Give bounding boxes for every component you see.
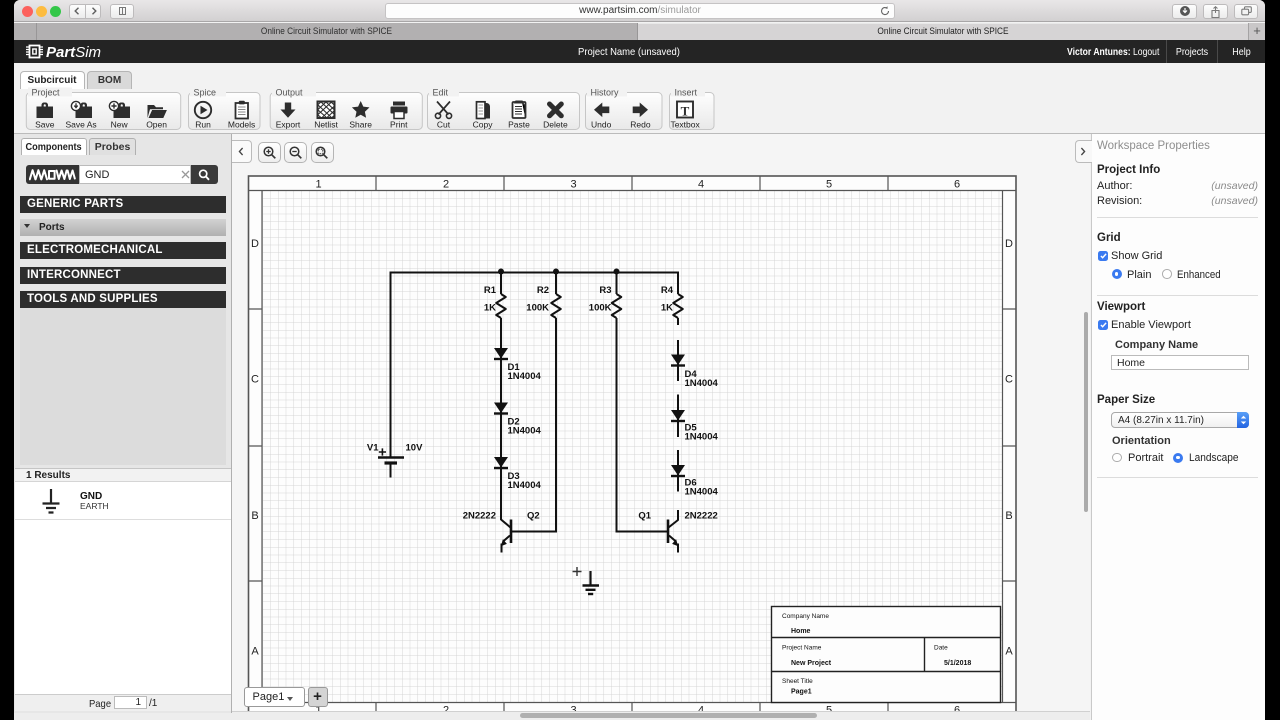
svg-text:Project: Project: [32, 88, 61, 98]
svg-text:R2: R2: [537, 285, 549, 296]
svg-text:A: A: [1005, 646, 1013, 658]
svg-text:Undo: Undo: [591, 120, 612, 130]
svg-text:Save: Save: [35, 120, 55, 130]
svg-text:2N2222: 2N2222: [463, 511, 496, 522]
svg-text:Netlist: Netlist: [314, 120, 338, 130]
svg-text:1N4004: 1N4004: [685, 378, 719, 389]
svg-text:1N4004: 1N4004: [685, 487, 719, 498]
svg-text:Cut: Cut: [437, 120, 451, 130]
svg-text:1N4004: 1N4004: [508, 480, 542, 491]
svg-text:Textbox: Textbox: [670, 120, 700, 130]
svg-text:Paste: Paste: [508, 120, 530, 130]
svg-text:1K: 1K: [661, 303, 673, 314]
svg-text:D: D: [251, 238, 259, 250]
svg-text:Company Name: Company Name: [782, 613, 829, 620]
svg-text:1N4004: 1N4004: [685, 432, 719, 443]
svg-text:Models: Models: [228, 120, 255, 130]
svg-text:2N2222: 2N2222: [685, 511, 718, 522]
svg-text:D: D: [1005, 238, 1013, 250]
svg-text:Save As: Save As: [66, 120, 97, 130]
svg-text:Spice: Spice: [194, 88, 217, 98]
svg-text:5/1/2018: 5/1/2018: [944, 660, 971, 667]
svg-text:4: 4: [698, 179, 704, 191]
svg-text:10V: 10V: [406, 443, 424, 454]
svg-text:Open: Open: [146, 120, 167, 130]
svg-text:1N4004: 1N4004: [508, 371, 542, 382]
svg-text:1K: 1K: [484, 303, 496, 314]
svg-text:Export: Export: [276, 120, 301, 130]
svg-text:Copy: Copy: [473, 120, 494, 130]
svg-text:Home: Home: [791, 628, 811, 635]
svg-text:New Project: New Project: [791, 660, 832, 667]
svg-text:Share: Share: [349, 120, 372, 130]
svg-text:A: A: [251, 646, 259, 658]
svg-text:C: C: [1005, 374, 1013, 386]
svg-text:Insert: Insert: [675, 88, 698, 98]
svg-text:Page1: Page1: [791, 689, 812, 696]
svg-text:History: History: [591, 88, 620, 98]
svg-text:Q2: Q2: [527, 511, 540, 522]
svg-text:Print: Print: [390, 120, 408, 130]
svg-text:R3: R3: [599, 285, 611, 296]
svg-text:B: B: [251, 510, 258, 522]
svg-text:Edit: Edit: [433, 88, 449, 98]
svg-text:B: B: [1005, 510, 1012, 522]
svg-text:2: 2: [443, 179, 449, 191]
svg-text:Date: Date: [934, 645, 948, 652]
svg-text:Q1: Q1: [638, 511, 651, 522]
svg-text:New: New: [111, 120, 129, 130]
svg-text:Sheet Title: Sheet Title: [782, 678, 813, 685]
svg-text:Output: Output: [276, 88, 304, 98]
svg-text:1: 1: [315, 179, 321, 191]
svg-text:C: C: [251, 374, 259, 386]
svg-text:R1: R1: [484, 285, 497, 296]
svg-text:Delete: Delete: [543, 120, 568, 130]
svg-text:T: T: [681, 104, 690, 119]
svg-text:100K: 100K: [526, 303, 549, 314]
svg-text:5: 5: [826, 179, 832, 191]
svg-text:Run: Run: [195, 120, 211, 130]
svg-text:V1: V1: [367, 443, 379, 454]
svg-text:Project Name: Project Name: [782, 645, 822, 652]
svg-text:R4: R4: [661, 285, 674, 296]
svg-text:100K: 100K: [589, 303, 612, 314]
svg-text:1N4004: 1N4004: [508, 426, 542, 437]
svg-text:6: 6: [954, 179, 960, 191]
svg-text:3: 3: [570, 179, 576, 191]
svg-text:Redo: Redo: [630, 120, 651, 130]
